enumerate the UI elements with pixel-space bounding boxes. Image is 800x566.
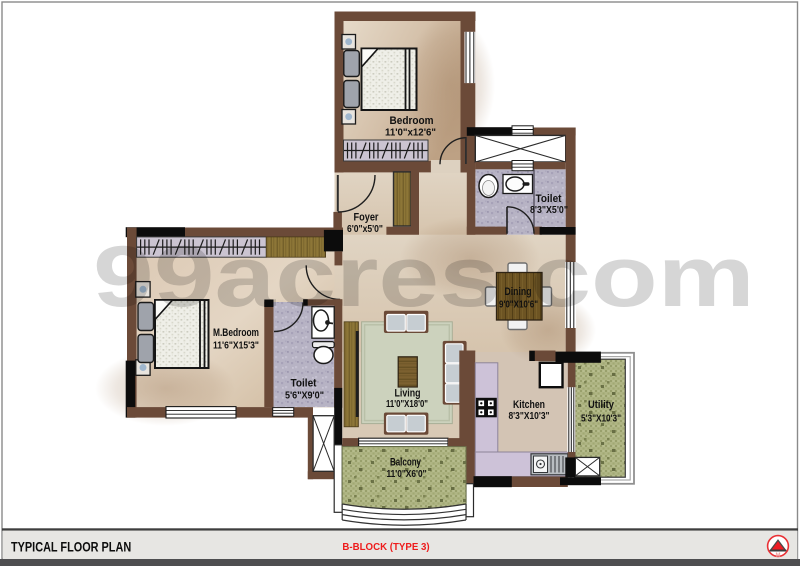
svg-text:Living: Living: [395, 388, 421, 400]
svg-text:11'6"X15'3": 11'6"X15'3": [213, 341, 259, 352]
svg-text:Foyer: Foyer: [354, 212, 380, 224]
svg-text:M: M: [776, 553, 781, 559]
svg-text:11'0"X18'0": 11'0"X18'0": [386, 399, 428, 410]
svg-text:Balcony: Balcony: [390, 457, 421, 469]
svg-text:B-BLOCK (TYPE 3): B-BLOCK (TYPE 3): [342, 542, 429, 553]
svg-text:5'3"X10'3": 5'3"X10'3": [581, 414, 621, 425]
svg-text:Bedroom: Bedroom: [390, 115, 434, 127]
svg-text:5'6"X9'0": 5'6"X9'0": [285, 391, 324, 402]
svg-text:11'0"x12'6": 11'0"x12'6": [385, 128, 436, 139]
svg-text:Toilet: Toilet: [291, 378, 317, 390]
svg-text:11'0"X6'0": 11'0"X6'0": [387, 469, 427, 480]
svg-text:99acres.com: 99acres.com: [93, 228, 755, 324]
svg-text:TYPICAL FLOOR PLAN: TYPICAL FLOOR PLAN: [11, 539, 131, 555]
svg-text:8'3"X10'3": 8'3"X10'3": [509, 411, 550, 422]
svg-text:M.Bedroom: M.Bedroom: [213, 327, 259, 339]
svg-text:8'3"X5'0": 8'3"X5'0": [530, 205, 568, 216]
svg-text:Toilet: Toilet: [536, 193, 562, 205]
svg-text:Kitchen: Kitchen: [513, 399, 545, 411]
svg-text:Utility: Utility: [588, 399, 614, 411]
